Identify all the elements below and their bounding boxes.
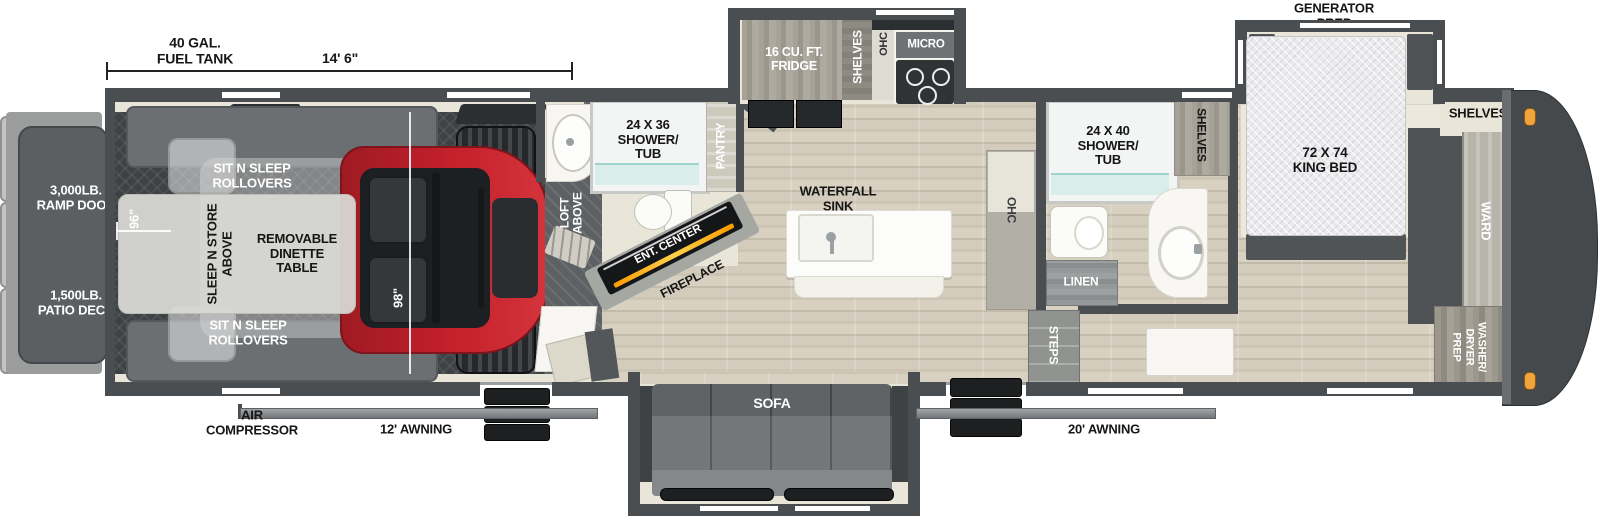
rear-wall <box>105 88 115 396</box>
king-bed-line2: KING BED <box>1293 160 1357 175</box>
bedroom-shelves-label: SHELVES <box>1449 107 1507 122</box>
patio-deck-label: 1,500LB. PATIO DECK <box>38 288 114 317</box>
air-compressor-label: AIR COMPRESSOR <box>206 408 298 437</box>
ramp-door <box>18 126 108 364</box>
pantry-wall <box>736 100 744 192</box>
rollover-bottom-line2: ROLLOVERS <box>208 333 287 348</box>
bath-shelves-label: SHELVES <box>1194 108 1207 162</box>
slide-window <box>1238 40 1243 84</box>
mid-shower-line3: TUB <box>618 147 679 162</box>
rollover-top-line2: ROLLOVERS <box>212 176 291 191</box>
roof-vent <box>455 104 547 124</box>
rollover-bottom-label: SIT N SLEEP ROLLOVERS <box>208 318 287 347</box>
fridge-line1: 16 CU. FT. <box>765 45 823 59</box>
king-bed-label: 72 X 74 KING BED <box>1293 145 1357 175</box>
loft-line2: ABOVE <box>572 192 585 234</box>
patio-label: PATIO DECK <box>38 303 114 318</box>
rollover-top-label: SIT N SLEEP ROLLOVERS <box>212 161 291 190</box>
pantry-label: PANTRY <box>714 123 727 170</box>
fuel-tank-line1: 40 GAL. <box>157 35 233 51</box>
dimension-tick-right <box>571 62 573 80</box>
utv-windshield-bar <box>478 188 484 308</box>
kitchen-shelves-label: SHELVES <box>851 30 864 84</box>
garage-bath-wall <box>536 102 545 182</box>
window <box>222 388 280 394</box>
slide-window <box>1300 23 1410 28</box>
micro-label: MICRO <box>907 39 944 52</box>
sleep-n-store-line1: SLEEP N STORE <box>205 204 220 305</box>
washer-dryer-prep-label: WASHER/ DRYER PREP <box>1451 322 1488 372</box>
waterfall-line1: WATERFALL <box>800 184 877 199</box>
dinette-line1: REMOVABLE <box>257 232 337 247</box>
awning-12ft-label: 12' AWNING <box>380 423 452 438</box>
utv-hood <box>492 198 538 298</box>
wd-line2: DRYER <box>1463 322 1475 372</box>
linen-label: LINEN <box>1063 275 1098 288</box>
main-toilet-bowl <box>1074 216 1104 250</box>
floor-mat <box>660 488 774 501</box>
wd-line3: PREP <box>1451 322 1463 372</box>
sleep-n-store-label: SLEEP N STORE ABOVE <box>205 204 234 305</box>
sofa-seat <box>652 416 892 470</box>
bath-left-wall <box>1036 100 1046 312</box>
garage-width-dimension-line <box>117 230 171 232</box>
range-hood <box>872 20 954 30</box>
steps-label: STEPS <box>1046 326 1059 364</box>
nightstand <box>1407 34 1433 90</box>
ward-label: WARD <box>1478 202 1493 241</box>
waterfall-line2: SINK <box>800 199 877 214</box>
generator-prep-line1: GENERATOR <box>1294 1 1374 16</box>
top-wall <box>105 88 748 102</box>
window <box>447 92 530 98</box>
slide-window <box>700 506 778 511</box>
patio-weight: 1,500LB. <box>38 288 114 303</box>
fridge-label: 16 CU. FT. FRIDGE <box>765 45 823 73</box>
dinette-line3: TABLE <box>257 261 337 276</box>
island-ledge <box>794 276 944 298</box>
island-sink <box>798 214 874 262</box>
fuel-tank-label: 40 GAL. FUEL TANK <box>157 35 233 66</box>
cooktop <box>896 60 954 104</box>
slide-window <box>795 506 870 511</box>
entry-step <box>950 418 1022 437</box>
marker-light <box>1524 108 1536 126</box>
burner <box>932 68 950 86</box>
shower-tub-floor <box>595 163 699 185</box>
air-line1: AIR <box>206 408 298 423</box>
front-cap-edge <box>1502 90 1511 404</box>
fuel-tank-line2: FUEL TANK <box>157 51 233 67</box>
length-dimension-line <box>107 70 573 72</box>
burner <box>918 86 937 105</box>
king-bed-line1: 72 X 74 <box>1293 145 1357 160</box>
window <box>1088 388 1183 394</box>
garage-width-dimension-tick <box>116 222 118 240</box>
awning-20ft <box>916 408 1216 419</box>
garage-height-dimension-label: 98" <box>392 288 407 308</box>
dinette-line2: DINETTE <box>257 247 337 262</box>
dinette-label: REMOVABLE DINETTE TABLE <box>257 232 337 276</box>
bottom-wall <box>920 382 946 396</box>
air-line2: COMPRESSOR <box>206 423 298 438</box>
bedroom-wardrobe-dark <box>1408 128 1462 324</box>
window <box>1182 92 1232 98</box>
vanity-faucet <box>1194 244 1202 254</box>
loft-label: LOFT ABOVE <box>559 192 586 234</box>
ramp-door-label: 3,000LB. RAMP DOOR <box>37 183 116 212</box>
rv-floorplan: 40 GAL. FUEL TANK 14' 6" GENERATOR PREP … <box>0 0 1600 520</box>
window <box>222 92 280 98</box>
fridge-line2: FRIDGE <box>765 59 823 73</box>
bed-foot-bench <box>1246 234 1406 260</box>
sofa-label: SOFA <box>753 396 790 412</box>
garage-width-dimension-label: 96" <box>128 209 143 229</box>
mid-shower-line1: 24 X 36 <box>618 118 679 133</box>
slide-window <box>876 10 954 15</box>
ramp-label: RAMP DOOR <box>37 198 116 213</box>
sleep-n-store-line2: ABOVE <box>220 204 235 305</box>
slide-floor-strip <box>640 372 908 384</box>
sink-drain <box>566 138 574 146</box>
king-bed <box>1246 36 1406 236</box>
utv-roll-bar <box>432 172 440 324</box>
marker-light <box>1524 372 1536 390</box>
sofa-arm <box>892 386 908 482</box>
entry-step <box>950 378 1022 397</box>
faucet-stem <box>830 240 834 254</box>
mid-toilet-bowl <box>634 194 672 230</box>
front-cap <box>1502 90 1598 406</box>
utv-seat <box>368 176 428 244</box>
awning-20ft-label: 20' AWNING <box>1068 423 1140 438</box>
slide-window <box>1437 40 1442 84</box>
burner <box>906 68 924 86</box>
rollover-bottom-line1: SIT N SLEEP <box>208 318 287 333</box>
entry-step <box>484 388 550 405</box>
bench <box>1146 328 1234 376</box>
garage-height-dimension-line <box>409 112 411 374</box>
fridge-door <box>748 100 794 128</box>
wd-line1: WASHER/ <box>1475 322 1487 372</box>
shower-tub-floor <box>1051 173 1169 195</box>
bottom-wall <box>105 382 480 396</box>
main-shower-line2: SHOWER/ <box>1078 139 1139 154</box>
dimension-tick-left <box>106 62 108 80</box>
fridge-door <box>796 100 842 128</box>
entry-step <box>484 424 550 441</box>
mid-shower-line2: SHOWER/ <box>618 133 679 148</box>
mid-shower-label: 24 X 36 SHOWER/ TUB <box>618 118 679 162</box>
kitchen-ohc-label: OHC <box>878 32 890 56</box>
ohc-island-label: OHC <box>1004 197 1017 223</box>
rollover-top-line1: SIT N SLEEP <box>212 161 291 176</box>
loft-line1: LOFT <box>559 192 572 234</box>
waterfall-sink-label: WATERFALL SINK <box>800 184 877 213</box>
main-shower-line3: TUB <box>1078 153 1139 168</box>
window <box>1327 388 1413 394</box>
ramp-weight: 3,000LB. <box>37 183 116 198</box>
length-dimension-label: 14' 6" <box>322 51 358 67</box>
main-shower-label: 24 X 40 SHOWER/ TUB <box>1078 124 1139 168</box>
main-shower-line1: 24 X 40 <box>1078 124 1139 139</box>
bottom-wall <box>552 382 628 396</box>
floor-mat <box>784 488 894 501</box>
